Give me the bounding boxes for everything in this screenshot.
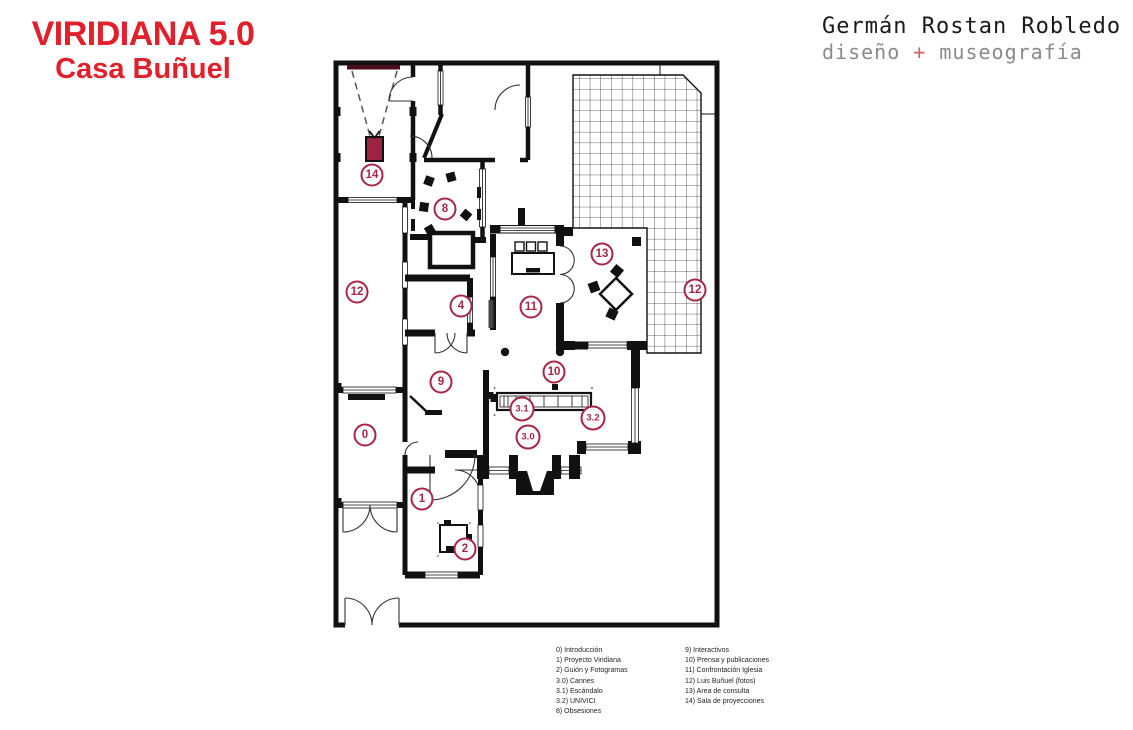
tagline-right: museografía <box>926 40 1083 64</box>
door-arc <box>455 470 480 495</box>
svg-text:12: 12 <box>689 284 702 296</box>
room-marker-8: 8 <box>435 199 456 220</box>
room-marker-4: 4 <box>451 296 472 317</box>
svg-text:1: 1 <box>419 493 426 505</box>
window <box>588 342 627 348</box>
display-case <box>491 384 593 416</box>
legend-item: 3.2) UNIVICI <box>556 697 628 707</box>
credit-block: Germán Rostan Robledo diseño + museograf… <box>822 14 1121 64</box>
svg-text:13: 13 <box>596 248 609 260</box>
legend-item: 3.1) Escándalo <box>556 687 628 697</box>
page-subtitle: Casa Buñuel <box>8 52 278 86</box>
room-marker-0: 0 <box>355 425 376 446</box>
legend-item: 1) Proyecto Viridiana <box>556 656 628 666</box>
designer-tagline: diseño + museografía <box>822 40 1121 64</box>
window <box>438 71 443 105</box>
svg-text:9: 9 <box>438 376 444 388</box>
door-arc <box>495 85 520 110</box>
door-arc <box>389 77 413 101</box>
wall <box>627 341 647 350</box>
svg-text:3.0: 3.0 <box>521 432 534 443</box>
svg-text:4: 4 <box>458 300 465 312</box>
bench <box>410 396 442 415</box>
tagline-left: diseño <box>822 40 913 64</box>
room-marker-12: 12 <box>347 282 368 303</box>
column <box>501 348 509 356</box>
exhibit-panel <box>348 394 385 400</box>
window <box>348 198 397 203</box>
window <box>526 97 531 127</box>
door-arc <box>405 442 418 455</box>
legend-item: 14) Sala de proyecciones <box>685 697 769 707</box>
radiator <box>489 300 494 328</box>
legend-item: 11) Confrontación Iglesia <box>685 666 769 676</box>
window <box>343 387 396 393</box>
page-title: VIRIDIANA 5.0 <box>8 16 278 52</box>
room-marker-3-2: 3.2 <box>582 407 605 430</box>
legend-item: 9) Interactivos <box>685 646 769 656</box>
projection-beam <box>352 71 397 136</box>
room-marker-3-1: 3.1 <box>511 398 534 421</box>
room-marker-2: 2 <box>455 539 476 560</box>
tiled-patio <box>573 75 701 353</box>
room0-double-door <box>343 505 397 532</box>
wall <box>577 441 586 454</box>
room-marker-12: 12 <box>685 280 706 301</box>
svg-text:8: 8 <box>442 203 449 215</box>
room-marker-10: 10 <box>544 362 565 383</box>
legend-item: 3.0) Cannes <box>556 677 628 687</box>
window <box>425 572 458 578</box>
pedestal <box>632 237 641 246</box>
svg-text:11: 11 <box>525 301 538 313</box>
title-block: VIRIDIANA 5.0 Casa Buñuel <box>8 16 278 86</box>
legend-item: 0) Introducción <box>556 646 628 656</box>
projection-room <box>347 65 400 161</box>
wall <box>556 228 564 246</box>
svg-text:0: 0 <box>362 429 368 441</box>
wall <box>518 208 525 226</box>
svg-text:10: 10 <box>548 366 561 378</box>
tagline-plus-sign: + <box>913 40 926 64</box>
svg-text:3.1: 3.1 <box>515 404 529 415</box>
room-marker-1: 1 <box>412 489 433 510</box>
designer-name: Germán Rostan Robledo <box>822 14 1121 40</box>
projection-screen <box>347 65 400 70</box>
legend-item: 10) Prensa y publicaciones <box>685 656 769 666</box>
room-marker-14: 14 <box>362 165 383 186</box>
legend-item: 13) Area de consulta <box>685 687 769 697</box>
storage-room <box>430 233 473 267</box>
wall <box>556 303 564 345</box>
legend-item: 8) Obsesiones <box>556 707 628 717</box>
projector-icon <box>366 137 383 161</box>
svg-text:14: 14 <box>366 169 379 181</box>
svg-text:12: 12 <box>351 286 364 298</box>
double-door-arcs <box>435 333 467 353</box>
wall <box>445 450 477 458</box>
legend-item: 2) Guión y Fotogramas <box>556 666 628 676</box>
room13-double-door <box>560 246 574 303</box>
window <box>500 226 555 234</box>
legend-column-2: 9) Interactivos10) Prensa y publicacione… <box>685 646 769 707</box>
wall <box>631 362 640 388</box>
room-marker-9: 9 <box>431 372 452 393</box>
diagonal-wall <box>424 114 442 158</box>
hall-table <box>512 242 554 274</box>
svg-text:2: 2 <box>462 543 468 555</box>
legend-column-1: 0) Introducción1) Proyecto Viridiana2) G… <box>556 646 628 717</box>
room-marker-11: 11 <box>521 297 542 318</box>
svg-text:3.2: 3.2 <box>586 413 599 424</box>
window <box>491 257 496 297</box>
legend-item: 12) Luis Buñuel (fotos) <box>685 677 769 687</box>
window <box>632 388 639 443</box>
wall <box>631 348 640 362</box>
app-canvas: VIRIDIANA 5.0 Casa Buñuel Germán Rostan … <box>0 0 1133 730</box>
room-marker-3-0: 3.0 <box>517 426 540 449</box>
entry-double-door <box>345 598 399 625</box>
wall <box>490 225 500 234</box>
wall <box>556 341 575 350</box>
consult-table <box>588 264 632 321</box>
room-marker-13: 13 <box>592 244 613 265</box>
bay-window <box>477 455 581 495</box>
window <box>586 444 628 450</box>
door-arc <box>430 455 475 500</box>
floor-plan-svg: 1481241113129103.13.23.0012 <box>333 57 733 632</box>
